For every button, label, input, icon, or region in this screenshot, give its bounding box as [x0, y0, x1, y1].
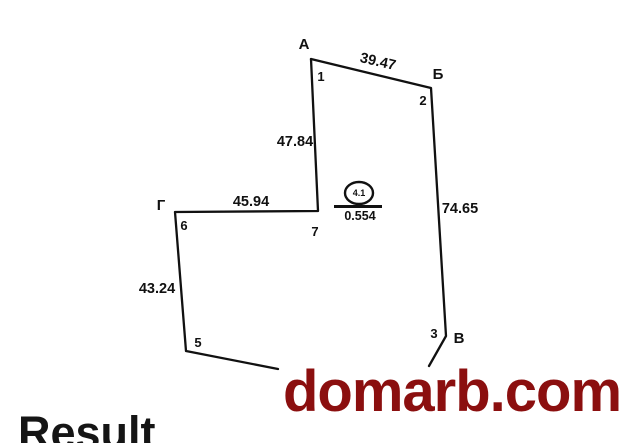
side-length-6-5: 43.24	[139, 281, 175, 297]
side-length-6-7: 45.94	[233, 194, 269, 210]
point-number-5: 5	[194, 335, 201, 350]
caption-result: Result	[18, 410, 156, 443]
point-number-7: 7	[311, 224, 318, 239]
parcel-fraction-bar	[334, 205, 382, 208]
side-length-7-1: 47.84	[277, 134, 313, 150]
point-number-3: 3	[430, 326, 437, 341]
point-number-1: 1	[317, 69, 324, 84]
vertex-label-b: Б	[433, 66, 444, 83]
side-length-2-3: 74.65	[442, 201, 478, 217]
watermark-text: domarb.com	[283, 360, 621, 424]
point-number-6: 6	[180, 218, 187, 233]
vertex-label-g: Г	[157, 197, 166, 214]
side-length-1-2: 39.47	[358, 50, 397, 74]
vertex-label-v: В	[454, 330, 465, 347]
parcel-area-text: 0.554	[344, 209, 375, 223]
boundary-left-outline	[175, 59, 318, 369]
parcel-number-text: 4.1	[353, 188, 366, 198]
vertex-label-a: А	[299, 36, 310, 53]
survey-plan-image: А Б В Г 1 2 3 5 6 7 39.47 47.84 45.94 74…	[0, 0, 630, 443]
point-number-2: 2	[419, 93, 426, 108]
